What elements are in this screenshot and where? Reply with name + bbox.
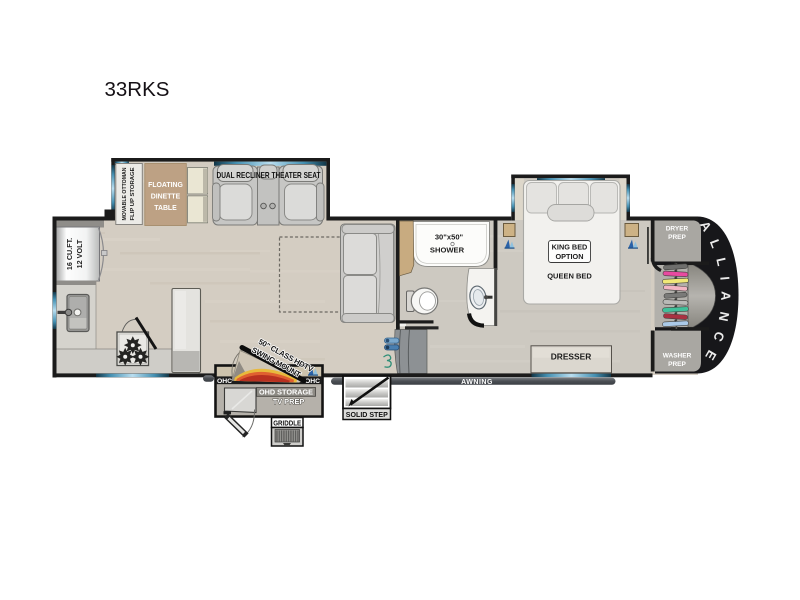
svg-text:FLOATING: FLOATING [148, 182, 183, 189]
svg-text:OHC: OHC [305, 378, 320, 385]
svg-text:GRIDDLE: GRIDDLE [273, 419, 301, 428]
svg-text:16 CU.FT.: 16 CU.FT. [65, 238, 74, 270]
svg-text:33RKS: 33RKS [105, 78, 170, 101]
svg-text:AWNING: AWNING [461, 379, 493, 386]
svg-text:30"x50": 30"x50" [435, 233, 464, 242]
svg-text:OPTION: OPTION [556, 252, 584, 261]
svg-text:KING BED: KING BED [552, 243, 588, 252]
svg-text:WASHER: WASHER [663, 353, 692, 360]
svg-text:QUEEN BED: QUEEN BED [547, 272, 592, 281]
svg-text:DINETTE: DINETTE [151, 194, 181, 201]
svg-text:TABLE: TABLE [154, 205, 177, 212]
svg-text:FLIP UP STORAGE: FLIP UP STORAGE [130, 167, 136, 220]
svg-text:SHOWER: SHOWER [430, 246, 465, 255]
svg-text:MOVABLE OTTOMAN: MOVABLE OTTOMAN [122, 168, 128, 221]
svg-text:PREP: PREP [668, 234, 686, 241]
svg-text:OHC: OHC [217, 378, 232, 385]
svg-text:12 VOLT: 12 VOLT [75, 239, 84, 268]
svg-text:DRYER: DRYER [666, 226, 689, 233]
svg-text:SOLID STEP: SOLID STEP [346, 410, 388, 419]
svg-text:DRESSER: DRESSER [551, 352, 592, 362]
svg-text:OHD STORAGE: OHD STORAGE [259, 387, 313, 396]
svg-text:TV PREP: TV PREP [273, 397, 305, 406]
svg-text:DUAL RECLINER THEATER SEAT: DUAL RECLINER THEATER SEAT [217, 170, 322, 180]
svg-text:PREP: PREP [668, 361, 686, 368]
